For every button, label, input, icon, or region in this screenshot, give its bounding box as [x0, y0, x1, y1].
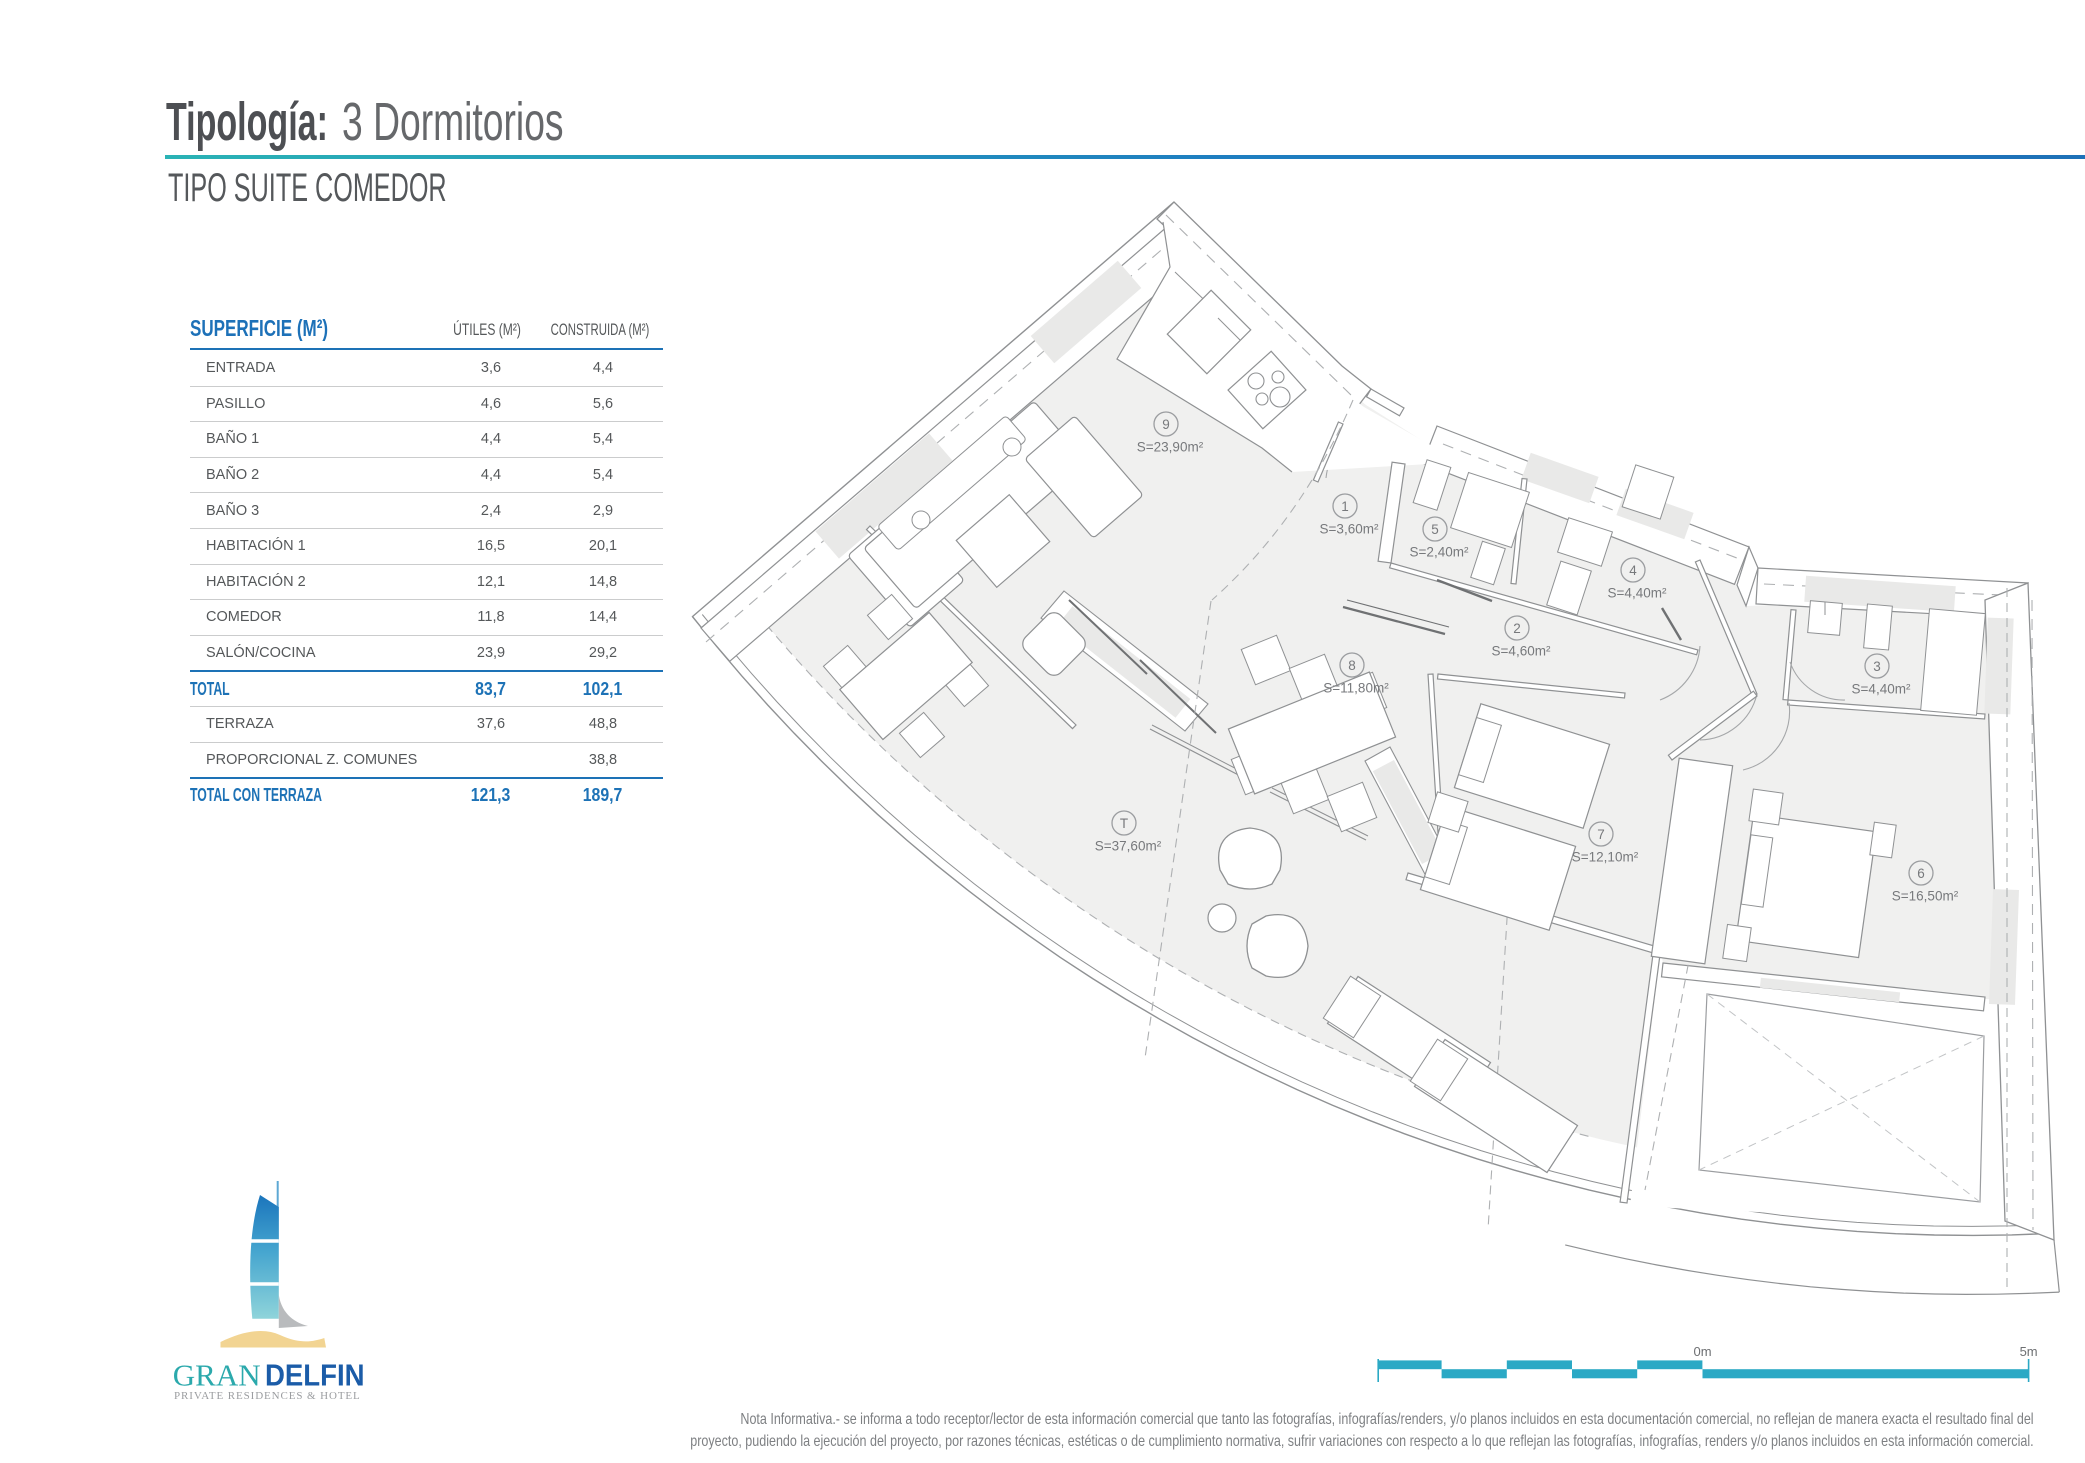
- svg-text:S=37,60m²: S=37,60m²: [1095, 839, 1162, 854]
- svg-text:S=4,60m²: S=4,60m²: [1492, 644, 1551, 659]
- svg-text:GRAN: GRAN: [173, 1358, 261, 1393]
- svg-text:T: T: [1120, 816, 1128, 831]
- svg-text:S=23,90m²: S=23,90m²: [1137, 440, 1204, 455]
- svg-text:5m: 5m: [2020, 1344, 2038, 1359]
- svg-text:S=12,10m²: S=12,10m²: [1572, 850, 1639, 865]
- svg-text:S=11,80m²: S=11,80m²: [1323, 681, 1389, 696]
- svg-text:6: 6: [1917, 866, 1925, 881]
- svg-text:S=4,40m²: S=4,40m²: [1608, 586, 1667, 601]
- svg-text:S=16,50m²: S=16,50m²: [1892, 889, 1959, 904]
- svg-text:S=2,40m²: S=2,40m²: [1410, 545, 1469, 560]
- svg-text:0m: 0m: [1693, 1344, 1711, 1359]
- svg-text:DELFIN: DELFIN: [265, 1358, 365, 1393]
- svg-text:S=4,40m²: S=4,40m²: [1852, 682, 1911, 697]
- svg-text:S=3,60m²: S=3,60m²: [1320, 522, 1379, 537]
- svg-text:7: 7: [1597, 827, 1605, 842]
- svg-text:4: 4: [1629, 563, 1637, 578]
- svg-text:2: 2: [1513, 621, 1521, 636]
- svg-text:8: 8: [1348, 658, 1356, 673]
- svg-text:5: 5: [1431, 522, 1439, 537]
- svg-text:PRIVATE RESIDENCES & HOTEL: PRIVATE RESIDENCES & HOTEL: [174, 1390, 361, 1402]
- svg-text:1: 1: [1341, 499, 1349, 514]
- svg-text:9: 9: [1162, 417, 1170, 432]
- svg-text:3: 3: [1873, 659, 1881, 674]
